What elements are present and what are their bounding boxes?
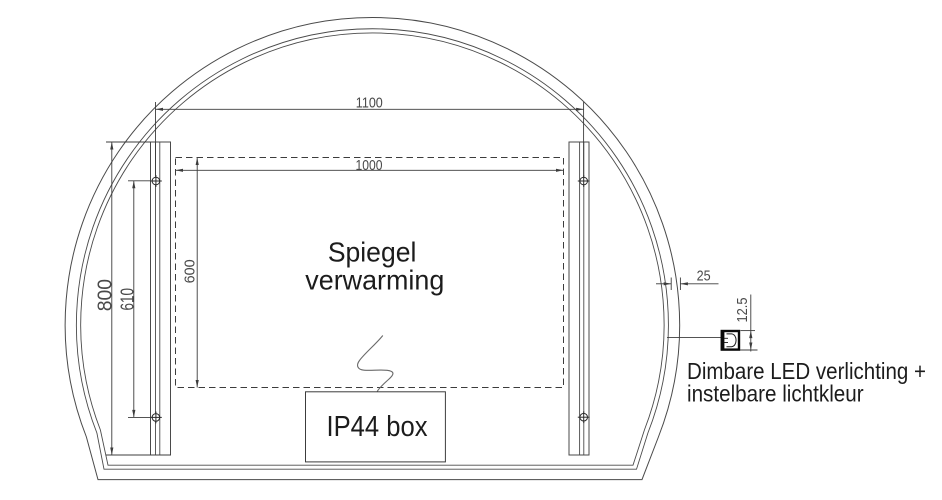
svg-text:IP44 box: IP44 box xyxy=(327,411,428,443)
svg-text:Spiegel: Spiegel xyxy=(328,237,417,268)
svg-text:1100: 1100 xyxy=(356,94,383,111)
svg-text:12.5: 12.5 xyxy=(734,298,751,323)
svg-text:600: 600 xyxy=(182,259,199,283)
svg-text:verwarming: verwarming xyxy=(305,265,444,296)
svg-text:800: 800 xyxy=(94,279,116,311)
svg-text:610: 610 xyxy=(118,288,138,311)
svg-text:instelbare lichtkleur: instelbare lichtkleur xyxy=(687,381,864,407)
svg-text:1000: 1000 xyxy=(356,157,383,174)
svg-text:25: 25 xyxy=(697,268,711,285)
